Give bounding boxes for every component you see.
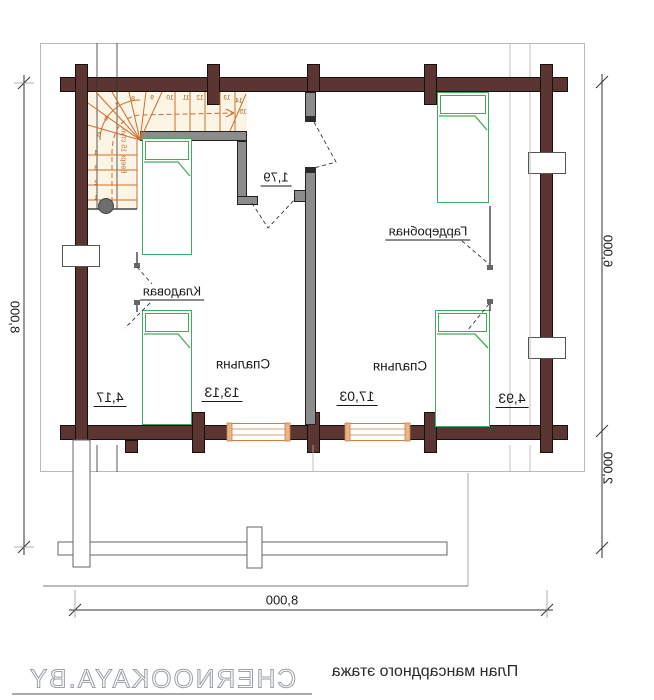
terrace-step (58, 542, 447, 555)
bed-pillow (438, 313, 487, 332)
hall-area: 1,79 (260, 170, 291, 185)
window-right-wall (528, 337, 566, 359)
stair-step-number: 7 (115, 103, 119, 110)
bedroom-left-area: 13,13 (201, 384, 242, 400)
stair-step-number: 9 (150, 95, 154, 102)
log-tab (424, 64, 437, 105)
bedroom-left-label: Спальня (216, 357, 270, 372)
log-tab (307, 64, 320, 92)
stair-note: Вверх 15 ступ. (120, 126, 127, 173)
page-title: План мансардного этажа (332, 663, 519, 681)
stair-step-number: 11 (183, 95, 190, 102)
dimension-right-house: 6,000 (601, 235, 616, 268)
window-left-wall (62, 245, 100, 267)
storage-label: Кладовая (140, 284, 204, 299)
stair-step-number: 10 (166, 95, 173, 102)
watermark: CHERNOOKAYA.BY (28, 664, 296, 695)
stair-step-number: 2 (94, 180, 98, 187)
bed (142, 138, 192, 255)
bed (142, 310, 192, 425)
stair-step-number: 6 (104, 116, 108, 123)
bedroom-right-label: Спальня (373, 359, 427, 374)
stair-wall-foot (237, 196, 258, 205)
window-bottom-wall (227, 423, 290, 441)
log-tab (125, 440, 138, 453)
dimension-left: 8,000 (8, 301, 23, 334)
stair-step-number: 5 (97, 132, 101, 139)
bed-pillow (145, 141, 189, 160)
stair-step-number: 1 (94, 195, 98, 202)
partition-center (305, 167, 316, 425)
log-tab (207, 64, 220, 105)
stair-step-number: 3 (94, 165, 98, 172)
bed (435, 310, 490, 427)
dimension-right-terrace: 2,000 (601, 452, 616, 485)
window-bottom-wall (345, 423, 410, 441)
stair-step-number: 13 (223, 95, 230, 102)
door-jamb (305, 167, 316, 173)
stair-step-number: 15 (239, 109, 246, 116)
floor-plan: 1,79 Кладовая Гардеробная Спальня Спальн… (0, 0, 654, 700)
stair-step-number: 14 (235, 98, 242, 105)
bed (437, 92, 489, 203)
wardrobe-area: 4,93 (495, 390, 528, 406)
terrace-post (247, 527, 262, 568)
bed-pillow (440, 95, 486, 114)
wall-right (540, 64, 553, 453)
bedroom-right-area: 17,03 (336, 388, 377, 404)
stair-step-number: 12 (196, 95, 203, 102)
stair-step-number: 8 (131, 96, 135, 103)
storage-area: 4,17 (93, 389, 126, 405)
dimension-bottom: 8,000 (266, 593, 299, 608)
stair-step-number: 4 (94, 150, 98, 157)
wardrobe-label: Гардеробная (386, 224, 471, 239)
log-tab (192, 412, 205, 453)
terrace-outline (43, 473, 468, 586)
stair-wall-vertical (237, 141, 247, 197)
window-right-wall (528, 152, 566, 174)
door-jamb (305, 116, 316, 122)
partition-tab (294, 190, 306, 202)
bed-pillow (145, 313, 189, 332)
